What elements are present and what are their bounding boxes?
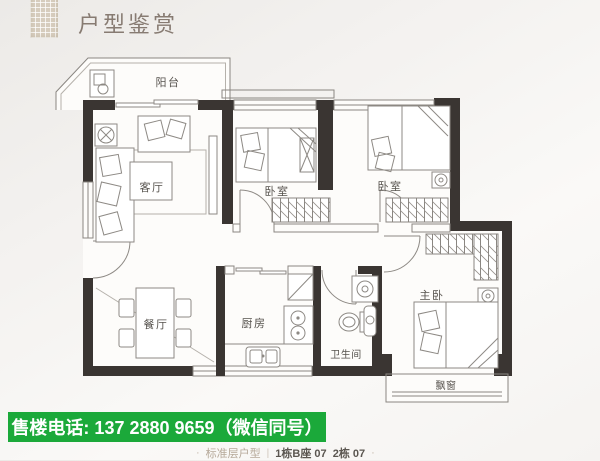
wardrobe <box>386 198 448 222</box>
sales-phone-banner: 售楼电话: 137 2880 9659（微信同号） <box>8 412 326 442</box>
room-label-master: 主卧 <box>420 289 445 302</box>
closet-vertical <box>474 234 498 280</box>
tv-cabinet <box>209 136 217 214</box>
caption-tail-dot: · <box>371 447 375 459</box>
caption-lead-dot: · <box>196 447 200 459</box>
room-label-balcony: 阳台 <box>156 75 181 89</box>
room-label-bathroom: 卫生间 <box>330 348 362 361</box>
caption-separator: | <box>267 448 270 459</box>
flyer-page: { "header": { "title": "户型鉴赏" }, "floor_… <box>0 0 600 460</box>
room-label-bedroom2: 卧室 <box>378 179 403 193</box>
room-label-kitchen: 厨房 <box>242 317 267 330</box>
ac-ledge <box>222 90 334 98</box>
coffee-table <box>130 162 172 200</box>
floor-plan: 阳台 <box>0 0 600 460</box>
caption-unit-type: 标准层户型 <box>206 445 261 461</box>
bed <box>236 128 316 182</box>
wardrobe <box>272 198 330 222</box>
unit-caption: · 标准层户型 | 1栋B座 07 2栋 07 · <box>196 445 375 461</box>
toilet-icon <box>339 313 359 331</box>
room-label-bedroom1: 卧室 <box>265 184 290 198</box>
room-label-dining: 餐厅 <box>144 317 169 331</box>
closet-horizontal <box>426 234 474 254</box>
shower <box>352 276 378 302</box>
caption-units: 1栋B座 07 2栋 07 <box>275 445 365 461</box>
room-label-baywindow: 飘窗 <box>436 379 457 392</box>
room-label-living: 客厅 <box>140 180 165 194</box>
